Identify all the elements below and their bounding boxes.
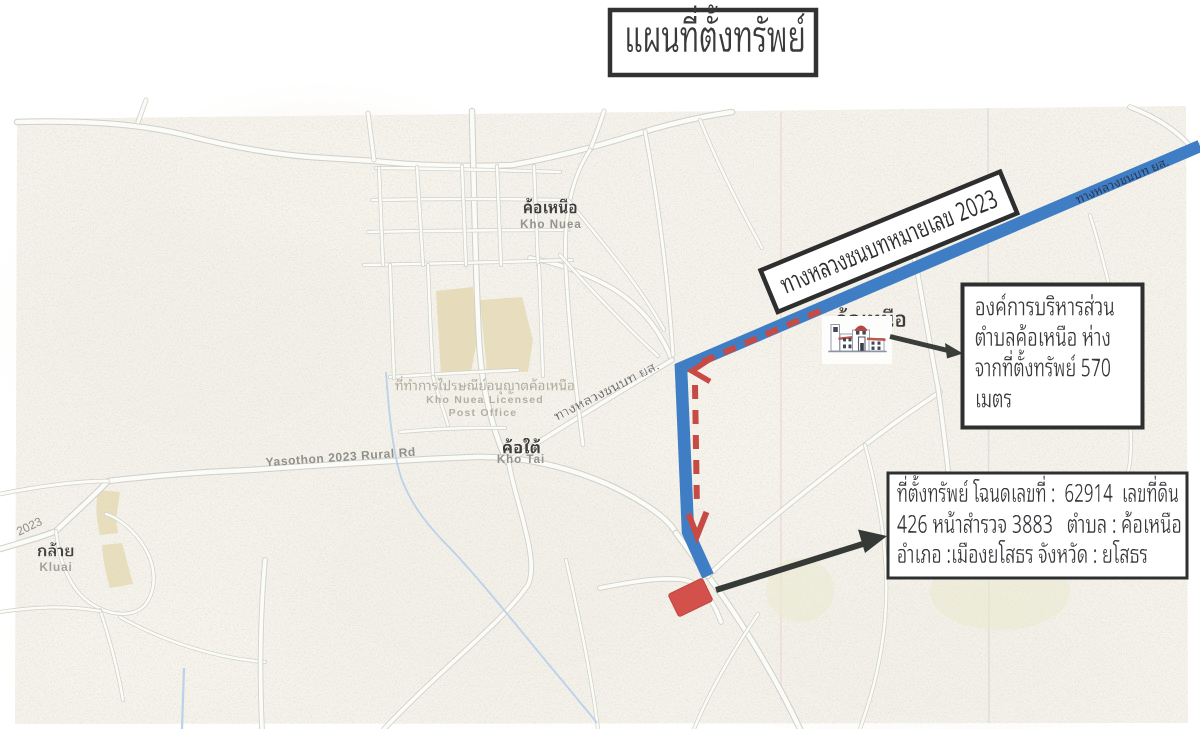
svg-text:Kho Tai: Kho Tai: [497, 454, 545, 466]
svg-text:Post Office: Post Office: [449, 407, 518, 419]
svg-text:2023: 2023: [14, 514, 44, 538]
svg-text:Kluai: Kluai: [39, 560, 72, 574]
svg-text:Kho Nuea: Kho Nuea: [520, 219, 582, 231]
svg-text:Kho Nuea Licensed: Kho Nuea Licensed: [426, 394, 544, 406]
svg-text:Yasothon 2023 Rural Rd: Yasothon 2023 Rural Rd: [265, 445, 416, 469]
